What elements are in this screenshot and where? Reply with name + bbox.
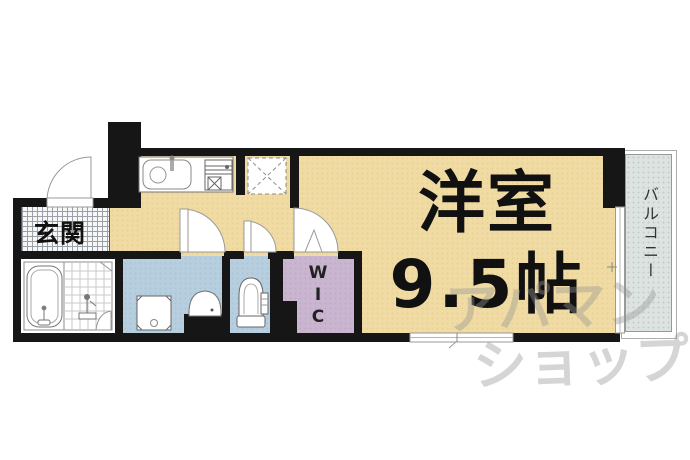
- toilet: [237, 278, 268, 327]
- washroom-door: [180, 209, 225, 252]
- refrigerator-space: [248, 158, 286, 194]
- entrance-door: [47, 157, 93, 207]
- bathtub: [27, 266, 62, 327]
- room-name-label: 洋室: [352, 162, 622, 244]
- main-room-label: 洋室 9.5帖: [352, 162, 622, 326]
- toilet-door: [244, 221, 276, 252]
- gas-stove: [205, 160, 232, 190]
- south-window: [410, 333, 513, 348]
- entrance-label: 玄関: [34, 214, 86, 250]
- wash-basin: [189, 291, 221, 316]
- bathroom-unit: [24, 262, 112, 330]
- balcony-label: バルコニー: [637, 186, 661, 281]
- room-size-label: 9.5帖: [352, 244, 622, 326]
- wic-door: [294, 208, 338, 252]
- washing-machine-pan: [137, 296, 171, 330]
- wic-label: WIC: [308, 263, 328, 329]
- floor-plan: 玄関 洋室 9.5帖 WIC バルコニー アパマン ショップ: [0, 0, 690, 460]
